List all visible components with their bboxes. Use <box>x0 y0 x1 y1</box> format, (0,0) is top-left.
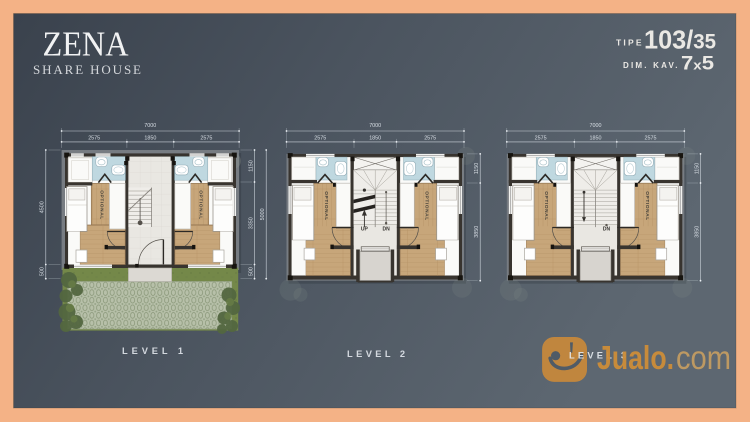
svg-text:OPTIONAL: OPTIONAL <box>198 190 204 220</box>
svg-text:2575: 2575 <box>535 136 547 142</box>
svg-text:2575: 2575 <box>314 136 326 142</box>
svg-text:500: 500 <box>248 267 254 276</box>
svg-text:500: 500 <box>40 267 46 276</box>
svg-text:2575: 2575 <box>424 136 436 142</box>
svg-text:7000: 7000 <box>369 123 381 129</box>
svg-text:7000: 7000 <box>590 123 602 129</box>
svg-text:OPTIONAL: OPTIONAL <box>323 191 329 221</box>
svg-text:ZENA: ZENA <box>43 25 130 64</box>
svg-text:LEVEL 2: LEVEL 2 <box>347 349 405 359</box>
svg-text:1150: 1150 <box>694 163 700 175</box>
svg-text:TIPE: TIPE <box>616 38 644 48</box>
svg-text:UP: UP <box>361 226 369 232</box>
svg-text:DN: DN <box>603 226 611 232</box>
svg-text:1850: 1850 <box>144 136 156 142</box>
svg-text:4500: 4500 <box>40 201 46 213</box>
svg-text:LEVEL 1: LEVEL 1 <box>122 346 183 356</box>
svg-text:1150: 1150 <box>474 163 480 175</box>
svg-text:2575: 2575 <box>200 136 212 142</box>
svg-text:DIM. KAV.: DIM. KAV. <box>623 61 680 70</box>
svg-text:7000: 7000 <box>144 123 156 129</box>
svg-text:SHARE HOUSE: SHARE HOUSE <box>33 62 141 77</box>
svg-text:2575: 2575 <box>645 136 657 142</box>
svg-text:OPTIONAL: OPTIONAL <box>424 191 430 221</box>
svg-text:3850: 3850 <box>474 226 480 238</box>
svg-text:Jualo.: Jualo. <box>597 339 674 376</box>
svg-text:OPTIONAL: OPTIONAL <box>644 191 650 221</box>
svg-text:OPTIONAL: OPTIONAL <box>543 191 549 221</box>
svg-text:3350: 3350 <box>248 217 254 229</box>
svg-text:1150: 1150 <box>248 160 254 172</box>
svg-text:1850: 1850 <box>590 136 602 142</box>
svg-text:5000: 5000 <box>260 208 266 220</box>
svg-text:OPTIONAL: OPTIONAL <box>99 190 105 220</box>
svg-text:7x5: 7x5 <box>681 54 714 75</box>
svg-text:1850: 1850 <box>369 136 381 142</box>
svg-text:3850: 3850 <box>694 226 700 238</box>
svg-text:DN: DN <box>382 226 390 232</box>
svg-text:com: com <box>676 339 731 376</box>
svg-text:2575: 2575 <box>88 136 100 142</box>
